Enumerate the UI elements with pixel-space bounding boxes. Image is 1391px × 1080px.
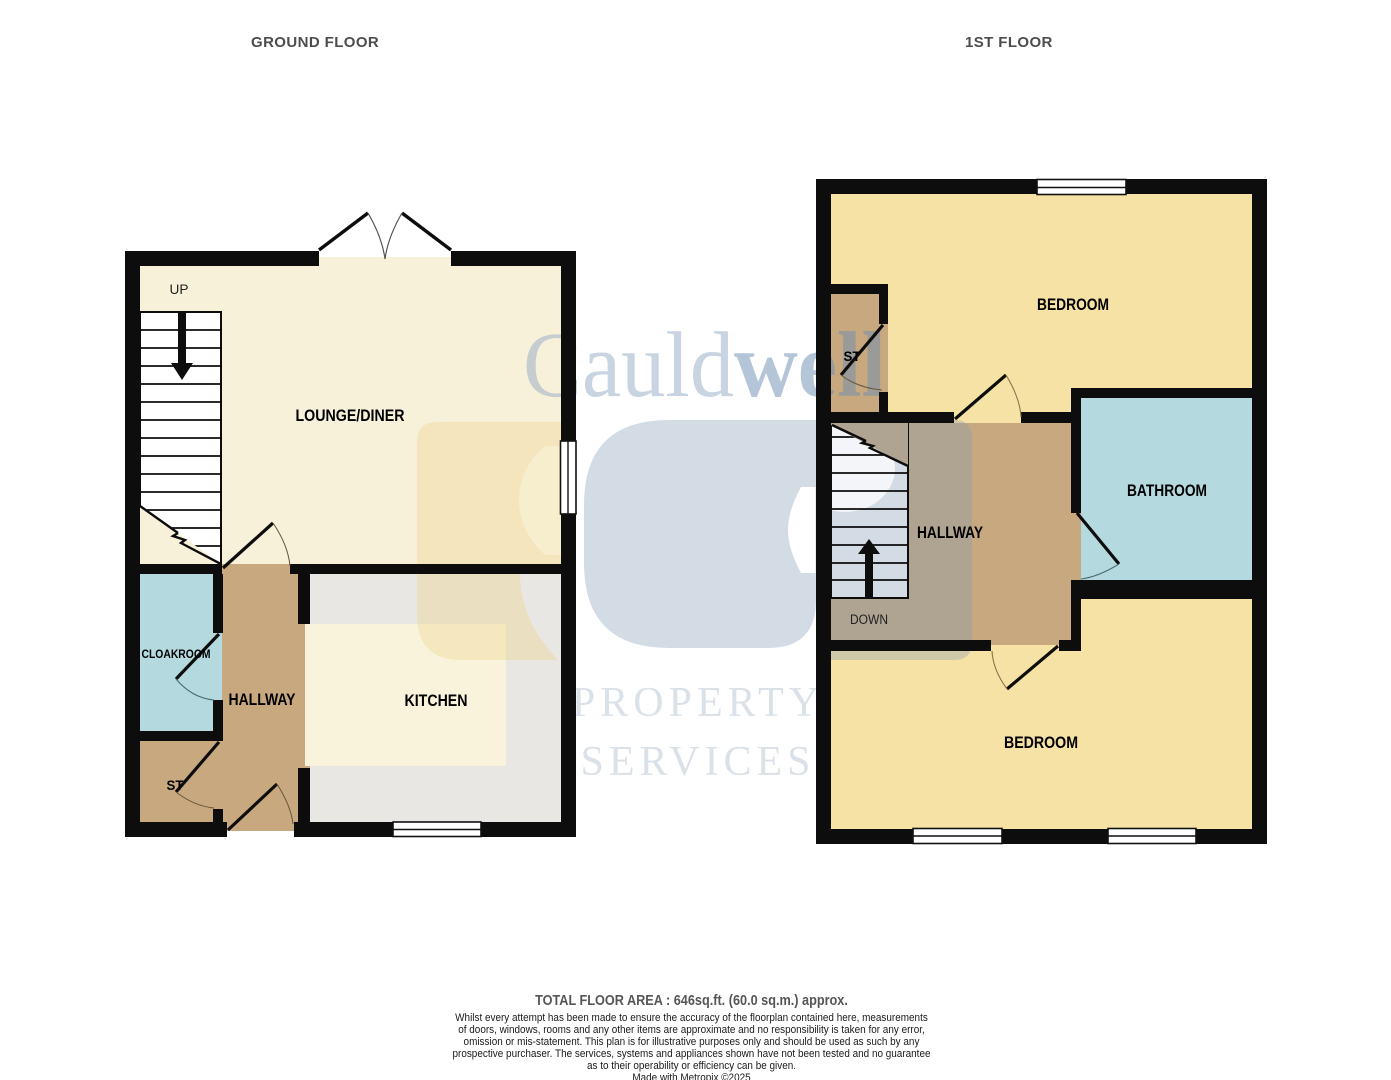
svg-text:LOUNGE/DINER: LOUNGE/DINER (296, 407, 405, 425)
svg-text:BATHROOM: BATHROOM (1127, 482, 1207, 500)
svg-text:DOWN: DOWN (850, 612, 888, 627)
svg-text:ST: ST (167, 778, 185, 793)
svg-text:KITCHEN: KITCHEN (405, 692, 468, 710)
svg-text:Cauldwell: Cauldwell (523, 313, 886, 417)
svg-text:ST: ST (844, 349, 862, 364)
svg-text:BEDROOM: BEDROOM (1004, 734, 1078, 752)
svg-text:HALLWAY: HALLWAY (917, 523, 984, 542)
svg-text:SERVICES: SERVICES (580, 739, 815, 785)
svg-text:UP: UP (170, 282, 189, 297)
svg-text:BEDROOM: BEDROOM (1037, 296, 1109, 314)
svg-text:HALLWAY: HALLWAY (229, 690, 297, 709)
svg-text:CLOAKROOM: CLOAKROOM (142, 647, 211, 661)
svg-text:PROPERTY: PROPERTY (572, 680, 824, 726)
